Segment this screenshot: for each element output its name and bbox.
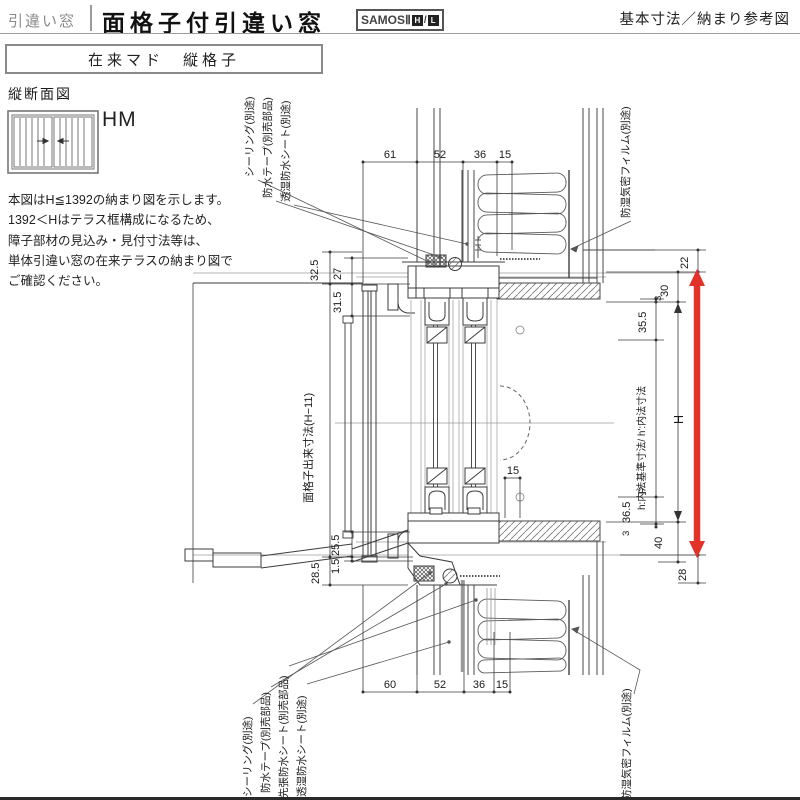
interior-head-casing	[497, 283, 600, 299]
callout-sealing-top: シーリング(別途)	[243, 97, 256, 178]
insect-screen	[343, 316, 353, 538]
dim-bottom-15: 15	[496, 679, 508, 691]
interior-sill-casing	[497, 521, 600, 541]
dim-30: 30	[659, 285, 671, 297]
dim-H: H	[672, 415, 686, 424]
dim-40: 40	[653, 537, 665, 549]
callout-breathable-sheet-top: 透湿防水シート(別途)	[279, 101, 292, 203]
dim-3a: 3	[653, 296, 664, 301]
glass-pane-interior	[472, 325, 476, 487]
sill-backer-rod	[443, 569, 457, 583]
dim-27: 27	[332, 268, 344, 280]
callout-waterproof-tape-top: 防水テープ(別売部品)	[261, 97, 274, 198]
grille-dimension-label: 面格子出来寸法(H−11)	[301, 393, 315, 503]
dim-3b: 3	[621, 531, 632, 536]
dim-bottom-36: 36	[473, 679, 485, 691]
head-screw-icon	[475, 236, 540, 259]
dim-35-5: 35.5	[637, 312, 649, 333]
dim-bottom-60: 60	[384, 679, 396, 691]
inner-dimension-label: h:内法基準寸法/ h':内法寸法	[635, 386, 648, 510]
vertical-section-drawing: 61 52 36 15 60 52 36 15 15 32.5 27 31.5 …	[0, 0, 800, 800]
dim-bottom-52: 52	[434, 679, 446, 691]
dim-top-52: 52	[434, 149, 446, 161]
dim-31-5: 31.5	[332, 292, 344, 313]
dim-28: 28	[677, 569, 689, 581]
glass-pane-exterior	[434, 325, 438, 487]
dim-32-5: 32.5	[309, 260, 321, 281]
dim-22: 22	[679, 257, 691, 269]
dim-25-5: 25.5	[330, 535, 342, 556]
dim-28-5: 28.5	[310, 563, 322, 584]
dim-mid-15: 15	[507, 465, 519, 477]
callout-vapor-film-top: 防湿気密フィルム(別途)	[619, 106, 632, 218]
dim-36-5: 36.5	[621, 502, 633, 523]
sash-assembly	[411, 298, 530, 514]
head-backer-rod	[449, 258, 462, 271]
dim-top-36: 36	[474, 149, 486, 161]
callout-sealing-bottom: シーリング(別途)	[241, 717, 254, 798]
callout-labels: シーリング(別途) 防水テープ(別売部品) 透湿防水シート(別途) 防湿気密フィ…	[241, 97, 648, 800]
dim-1-5: 1.5	[330, 559, 342, 574]
sill-exterior-trim	[185, 544, 352, 568]
callout-pre-waterproof-sheet-bottom: 先張防水シート(別売部品)	[277, 676, 290, 799]
callout-waterproof-tape-bottom: 防水テープ(別売部品)	[259, 692, 272, 793]
insulation-batt-upper	[478, 173, 567, 254]
height-dimension-arrow	[689, 269, 705, 558]
callout-breathable-sheet-bottom: 透湿防水シート(別途)	[295, 696, 308, 798]
dimension-labels: 61 52 36 15 60 52 36 15 15 32.5 27 31.5 …	[309, 149, 691, 691]
dim-top-15: 15	[499, 149, 511, 161]
callout-vapor-film-bottom: 防湿気密フィルム(別途)	[620, 688, 633, 800]
dim-top-61: 61	[384, 149, 396, 161]
dimension-lines	[322, 161, 706, 694]
sill-frame	[185, 508, 500, 585]
